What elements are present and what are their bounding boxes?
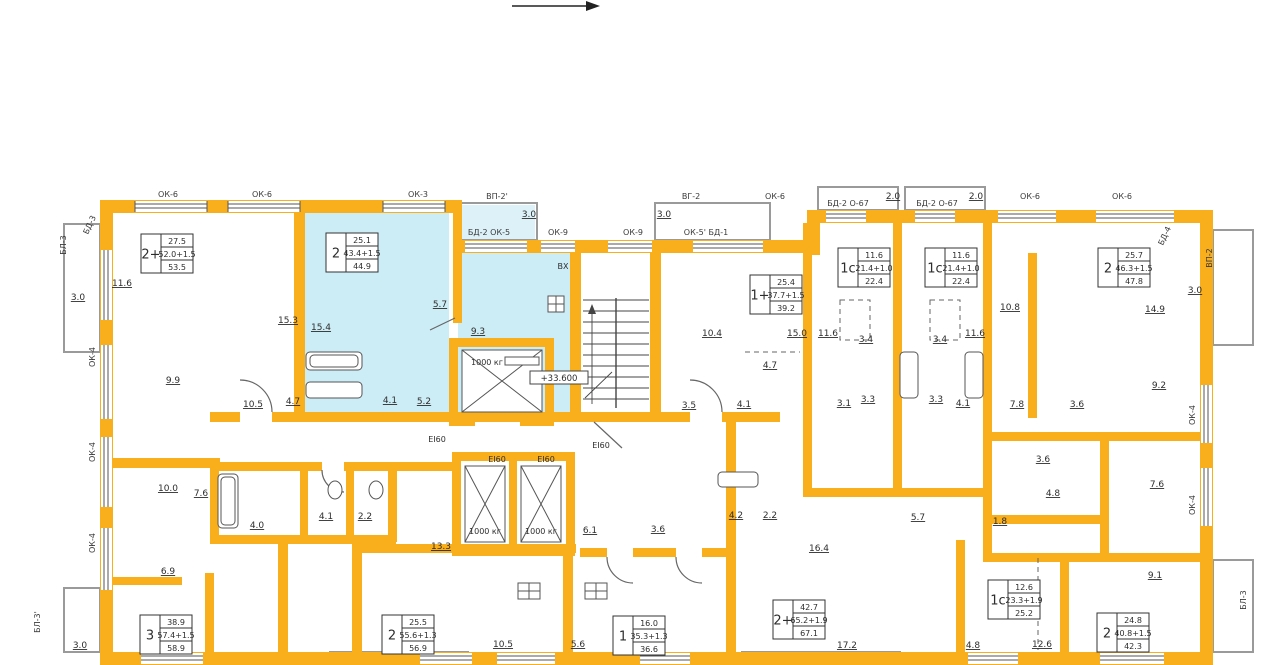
- apartment-total-area: 36.6: [640, 645, 658, 654]
- apartment-living-area: 38.9: [167, 618, 185, 627]
- core-label: EI60: [488, 455, 506, 464]
- apartment-living-area: 16.0: [640, 619, 658, 628]
- apartment-type-label: 2: [332, 247, 340, 262]
- walls: [100, 200, 1213, 665]
- room-area-label: 3.3: [929, 395, 943, 405]
- apartment-stamp[interactable]: 116.035.3+1.336.6: [613, 616, 668, 655]
- floorplan-canvas: +33.600 11.615.315.49.910.54.74.15.25.79…: [0, 0, 1280, 665]
- room-area-label: 14.9: [1145, 305, 1165, 315]
- room-area-label: 5.7: [911, 513, 925, 523]
- apartment-living-area: 24.8: [1124, 616, 1142, 625]
- window-mark-label: ВГ-2: [682, 192, 700, 201]
- room-area-label: 15.4: [311, 323, 331, 333]
- room-area-label: 10.0: [158, 484, 178, 494]
- core-label: 1000 кг: [469, 527, 501, 536]
- room-area-label: 4.8: [1046, 489, 1061, 499]
- room-area-label: 9.2: [1152, 381, 1166, 391]
- room-area-label: 4.7: [286, 397, 300, 407]
- apartment-stamp[interactable]: 2+27.552.0+1.553.5: [141, 234, 196, 273]
- window-mark-label: ОК-5' БД-1: [684, 228, 728, 237]
- apartment-total-area: 22.4: [865, 277, 883, 286]
- window-mark-label: ОК-4: [1188, 495, 1197, 515]
- apartment-area-formula: 65.2+1.9: [790, 616, 827, 625]
- room-area-label: 17.2: [837, 641, 857, 651]
- room-area-label: 4.0: [250, 521, 265, 531]
- window-mark-label: ОК-3: [408, 190, 428, 199]
- apartment-area-formula: 21.4+1.0: [855, 264, 892, 273]
- apartment-area-formula: 40.8+1.5: [1114, 629, 1151, 638]
- room-area-label: 3.5: [682, 401, 696, 411]
- window-mark-label: БД-2 ОК-5: [468, 228, 510, 237]
- room-area-label: 16.4: [809, 544, 829, 554]
- room-area-label: 3.4: [933, 335, 948, 345]
- room-area-label: 3.0: [657, 210, 672, 220]
- room-area-label: 2.2: [763, 511, 777, 521]
- room-area-label: 3.6: [1070, 400, 1085, 410]
- room-area-label: 4.1: [737, 400, 751, 410]
- window-mark-label: ОК-6: [252, 190, 272, 199]
- room-area-label: 3.1: [837, 399, 851, 409]
- apartment-total-area: 42.3: [1124, 642, 1142, 651]
- room-area-label: 10.8: [1000, 303, 1020, 313]
- room-area-label: 4.7: [763, 361, 777, 371]
- apartment-living-area: 25.7: [1125, 251, 1143, 260]
- apartment-living-area: 25.5: [409, 618, 427, 627]
- window-mark-label: ОК-6: [158, 190, 178, 199]
- apartment-living-area: 25.1: [353, 236, 371, 245]
- apartment-area-formula: 57.4+1.5: [157, 631, 194, 640]
- room-area-label: 3.0: [71, 293, 86, 303]
- room-area-label: 6.9: [161, 567, 176, 577]
- room-area-label: 6.1: [583, 526, 597, 536]
- window-mark-label: БД-4: [1156, 225, 1172, 247]
- level-mark-label: +33.600: [541, 374, 578, 384]
- window-mark-label: БЛ-3': [33, 611, 42, 633]
- apartment-stamp[interactable]: 225.143.4+1.544.9: [326, 233, 381, 272]
- core-label: 1000 кг: [525, 527, 557, 536]
- room-area-label: 3.6: [651, 525, 666, 535]
- apartment-stamp[interactable]: 225.746.3+1.547.8: [1098, 248, 1153, 287]
- window-mark-label: ВП-2': [486, 192, 508, 201]
- apartment-area-formula: 43.4+1.5: [343, 249, 380, 258]
- apartment-living-area: 42.7: [800, 603, 818, 612]
- room-area-label: 4.1: [956, 399, 970, 409]
- window-mark-label: БД-2 О-67: [916, 199, 958, 208]
- room-area-label: 3.0: [522, 210, 537, 220]
- apartment-total-area: 44.9: [353, 262, 371, 271]
- room-area-label: 3.3: [861, 395, 875, 405]
- north-arrow-icon: [512, 1, 600, 11]
- apartment-total-area: 67.1: [800, 629, 818, 638]
- core-label: ВХ: [558, 262, 569, 271]
- apartment-living-area: 11.6: [952, 251, 970, 260]
- room-area-label: 11.6: [112, 279, 132, 289]
- window-mark-label: ОК-9: [548, 228, 568, 237]
- window-mark-label: БЛ-3: [59, 235, 68, 254]
- apartment-type-label: 1с: [927, 262, 942, 277]
- apartment-stamp[interactable]: 1с11.621.4+1.022.4: [925, 248, 980, 287]
- room-area-label: 10.4: [702, 329, 722, 339]
- room-area-label: 4.8: [966, 641, 981, 651]
- floorplan-page: +33.600 11.615.315.49.910.54.74.15.25.79…: [0, 0, 1280, 665]
- room-area-label: 9.1: [1148, 571, 1162, 581]
- window-mark-label: ВП-2: [1205, 248, 1214, 267]
- window-mark-label: ОК-4: [88, 442, 97, 462]
- apartment-total-area: 58.9: [167, 644, 185, 653]
- apartment-total-area: 47.8: [1125, 277, 1143, 286]
- room-area-label: 2.0: [969, 192, 984, 202]
- apartment-type-label: 2: [1103, 627, 1111, 642]
- apartment-area-formula: 35.3+1.3: [630, 632, 667, 641]
- room-area-label: 15.0: [787, 329, 807, 339]
- room-area-label: 11.6: [965, 329, 985, 339]
- room-area-label: 3.4: [859, 335, 874, 345]
- window-mark-label: ОК-4: [88, 347, 97, 367]
- core-label: 1000 кг: [471, 358, 503, 367]
- core-label: EI60: [592, 441, 610, 450]
- room-area-label: 3.0: [73, 641, 88, 651]
- apartment-stamp[interactable]: 338.957.4+1.558.9: [140, 615, 195, 654]
- apartment-total-area: 25.2: [1015, 609, 1033, 618]
- room-area-label: 5.7: [433, 300, 447, 310]
- apartment-total-area: 56.9: [409, 644, 427, 653]
- room-area-label: 7.8: [1010, 400, 1025, 410]
- apartment-area-formula: 37.7+1.5: [767, 291, 804, 300]
- room-area-label: 4.1: [319, 512, 333, 522]
- apartment-area-formula: 21.4+1.0: [942, 264, 979, 273]
- room-area-label: 5.2: [417, 397, 431, 407]
- room-area-label: 15.3: [278, 316, 298, 326]
- apartment-type-label: 1с: [990, 594, 1005, 609]
- apartment-living-area: 12.6: [1015, 583, 1033, 592]
- core-label: EI60: [537, 455, 555, 464]
- room-area-label: 13.3: [431, 542, 451, 552]
- apartment-area-formula: 55.6+1.3: [399, 631, 436, 640]
- core-label: EI60: [428, 435, 446, 444]
- room-area-label: 10.5: [493, 640, 513, 650]
- apartment-stamp[interactable]: 1с11.621.4+1.022.4: [838, 248, 893, 287]
- room-area-label: 4.1: [383, 396, 397, 406]
- window-mark-label: ОК-6: [765, 192, 785, 201]
- apartment-type-label: 2: [388, 629, 396, 644]
- staircase: [583, 298, 649, 408]
- apartment-living-area: 25.4: [777, 278, 795, 287]
- apartment-stamp[interactable]: 225.555.6+1.356.9: [382, 615, 437, 654]
- window-mark-label: БД-2 О-67: [827, 199, 869, 208]
- room-area-label: 2.2: [358, 512, 372, 522]
- apartment-total-area: 53.5: [168, 263, 186, 272]
- apartment-type-label: 1: [619, 630, 627, 645]
- room-area-label: 3.0: [1188, 286, 1203, 296]
- window-mark-label: ОК-6: [1020, 192, 1040, 201]
- window-mark-label: ОК-6: [1112, 192, 1132, 201]
- apartment-stamp[interactable]: 2+42.765.2+1.967.1: [773, 600, 828, 639]
- apartment-living-area: 11.6: [865, 251, 883, 260]
- apartment-living-area: 27.5: [168, 237, 186, 246]
- room-area-label: 11.6: [818, 329, 838, 339]
- room-area-label: 9.9: [166, 376, 181, 386]
- apartment-area-formula: 52.0+1.5: [158, 250, 195, 259]
- apartment-type-label: 1с: [840, 262, 855, 277]
- apartment-stamp[interactable]: 1+25.437.7+1.539.2: [750, 275, 805, 314]
- room-area-label: 12.6: [1032, 640, 1052, 650]
- room-area-label: 3.6: [1036, 455, 1051, 465]
- room-area-label: 1.8: [993, 517, 1008, 527]
- room-area-label: 7.6: [1150, 480, 1165, 490]
- apartment-area-formula: 23.3+1.9: [1005, 596, 1042, 605]
- level-mark: +33.600: [530, 371, 588, 384]
- room-area-label: 7.6: [194, 489, 209, 499]
- window-mark-label: БЛ-3: [1239, 590, 1248, 609]
- window-mark-label: ОК-4: [1188, 405, 1197, 425]
- room-area-label: 5.6: [571, 640, 586, 650]
- window-mark-label: ОК-9: [623, 228, 643, 237]
- apartment-area-formula: 46.3+1.5: [1115, 264, 1152, 273]
- apartment-stamp[interactable]: 224.840.8+1.542.3: [1097, 613, 1152, 652]
- room-area-label: 4.2: [729, 511, 743, 521]
- room-area-label: 10.5: [243, 400, 263, 410]
- apartment-total-area: 22.4: [952, 277, 970, 286]
- apartment-total-area: 39.2: [777, 304, 795, 313]
- apartment-type-label: 2: [1104, 262, 1112, 277]
- room-area-label: 9.3: [471, 327, 485, 337]
- apartment-stamp[interactable]: 1с12.623.3+1.925.2: [988, 580, 1043, 619]
- apartment-type-label: 3: [146, 629, 154, 644]
- window-mark-label: ОК-4: [88, 533, 97, 553]
- room-area-label: 2.0: [886, 192, 901, 202]
